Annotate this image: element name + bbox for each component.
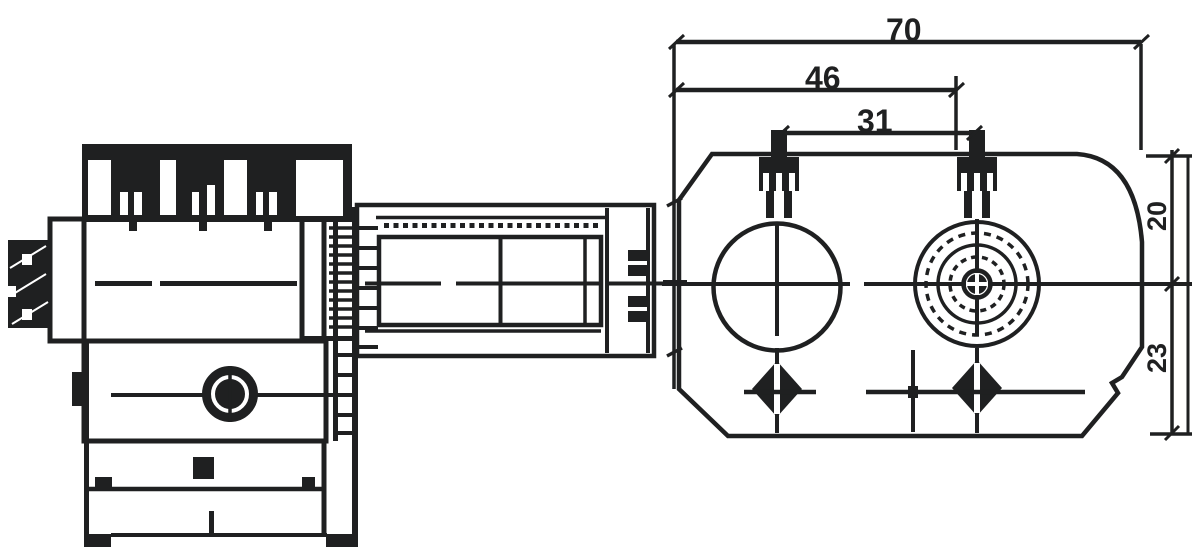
svg-text:20: 20 <box>1142 201 1172 231</box>
svg-text:46: 46 <box>805 60 841 96</box>
svg-text:31: 31 <box>857 103 893 139</box>
svg-text:23: 23 <box>1142 343 1172 373</box>
svg-text:70: 70 <box>886 12 922 48</box>
